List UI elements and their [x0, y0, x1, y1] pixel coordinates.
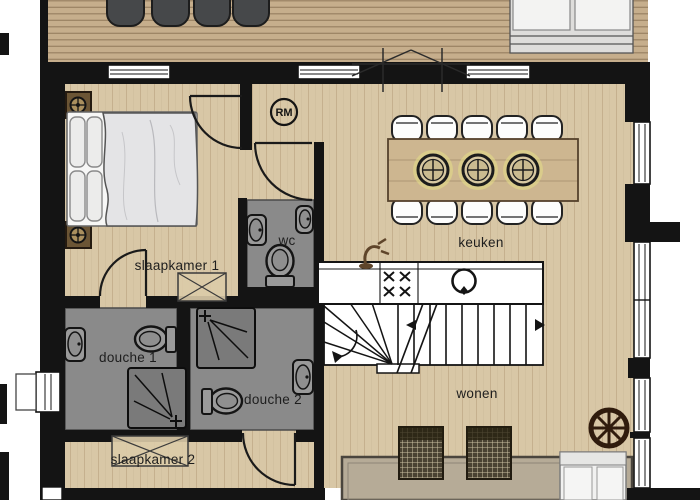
- deck-chair: [194, 0, 230, 26]
- deck-chair: [233, 0, 269, 26]
- label-douche-1: douche 1: [99, 350, 157, 365]
- window: [634, 378, 650, 432]
- nightstand-lamp: [71, 98, 86, 113]
- shower-tray: [197, 308, 255, 368]
- wall-stub: [0, 452, 9, 500]
- label-slaapkamer-1: slaapkamer 1: [135, 258, 220, 273]
- wall-bedroom1-bath: [65, 296, 100, 308]
- pendant-lamp: [503, 150, 543, 190]
- toilet: [202, 389, 242, 415]
- deck-terrace: [40, 0, 648, 62]
- wall-bedroom1-bath: [146, 296, 324, 308]
- window: [634, 438, 650, 488]
- window: [634, 242, 650, 358]
- pillow: [87, 171, 102, 221]
- deck-lounge-set: [510, 0, 633, 53]
- pendant-lamp: [413, 150, 453, 190]
- shower-tray: [128, 368, 186, 428]
- window-sill-divider: [630, 432, 650, 438]
- deck-chair: [152, 0, 189, 26]
- window: [42, 487, 62, 500]
- wall-bottom-right: [627, 488, 700, 500]
- window: [298, 65, 360, 79]
- sofa: [560, 452, 626, 500]
- toilet: [266, 245, 294, 287]
- window: [108, 65, 170, 79]
- deck-edge: [40, 0, 48, 62]
- label-wonen: wonen: [455, 386, 497, 401]
- wall-stub: [0, 384, 7, 424]
- dining-set: [388, 116, 578, 224]
- wall-pier: [625, 84, 650, 122]
- duvet: [103, 113, 198, 226]
- deck-chair: [107, 0, 144, 26]
- wagon-wheel: [591, 410, 627, 446]
- smoke-detector-label: RM: [275, 107, 292, 119]
- window: [16, 372, 60, 412]
- floor-plan: RM slaapkamer 1 wc keuken douche 1 douch…: [0, 0, 700, 500]
- pillow: [87, 117, 102, 167]
- bed: [67, 112, 198, 226]
- wall-stub: [0, 33, 9, 55]
- wardrobe: [178, 273, 226, 301]
- wall-wc-left: [238, 198, 247, 298]
- wall-left: [40, 62, 65, 500]
- window: [634, 122, 650, 184]
- wall-pier-extension: [648, 222, 680, 242]
- wall-bath-bedroom2: [296, 430, 324, 442]
- wall-pier: [628, 358, 650, 378]
- exterior-right: [650, 84, 700, 488]
- nightstand-lamp: [71, 228, 86, 243]
- woven-lounge-chair: [399, 427, 443, 479]
- wall-sink: [65, 328, 85, 361]
- label-slaapkamer-2: slaapkamer 2: [111, 452, 196, 467]
- pillow: [70, 171, 85, 221]
- window-sill: [16, 374, 36, 410]
- label-wc: wc: [277, 233, 295, 248]
- bedroom1-furniture: [66, 92, 198, 248]
- pendant-lamps: [413, 150, 543, 190]
- label-douche-2: douche 2: [244, 392, 302, 407]
- toilet: [135, 327, 176, 353]
- label-keuken: keuken: [458, 235, 503, 250]
- pillow: [70, 117, 85, 167]
- wall-pier: [625, 184, 650, 242]
- woven-lounge-chair: [467, 427, 511, 479]
- wall-bedroom-hall: [240, 84, 252, 150]
- floor-plan-canvas: RM slaapkamer 1 wc keuken douche 1 douch…: [0, 0, 700, 500]
- wall-sink: [296, 206, 313, 233]
- wall-sink: [293, 360, 313, 394]
- window: [466, 65, 530, 79]
- wall-bottom-left: [40, 488, 325, 500]
- pendant-lamp: [458, 150, 498, 190]
- wall-sink: [247, 215, 266, 245]
